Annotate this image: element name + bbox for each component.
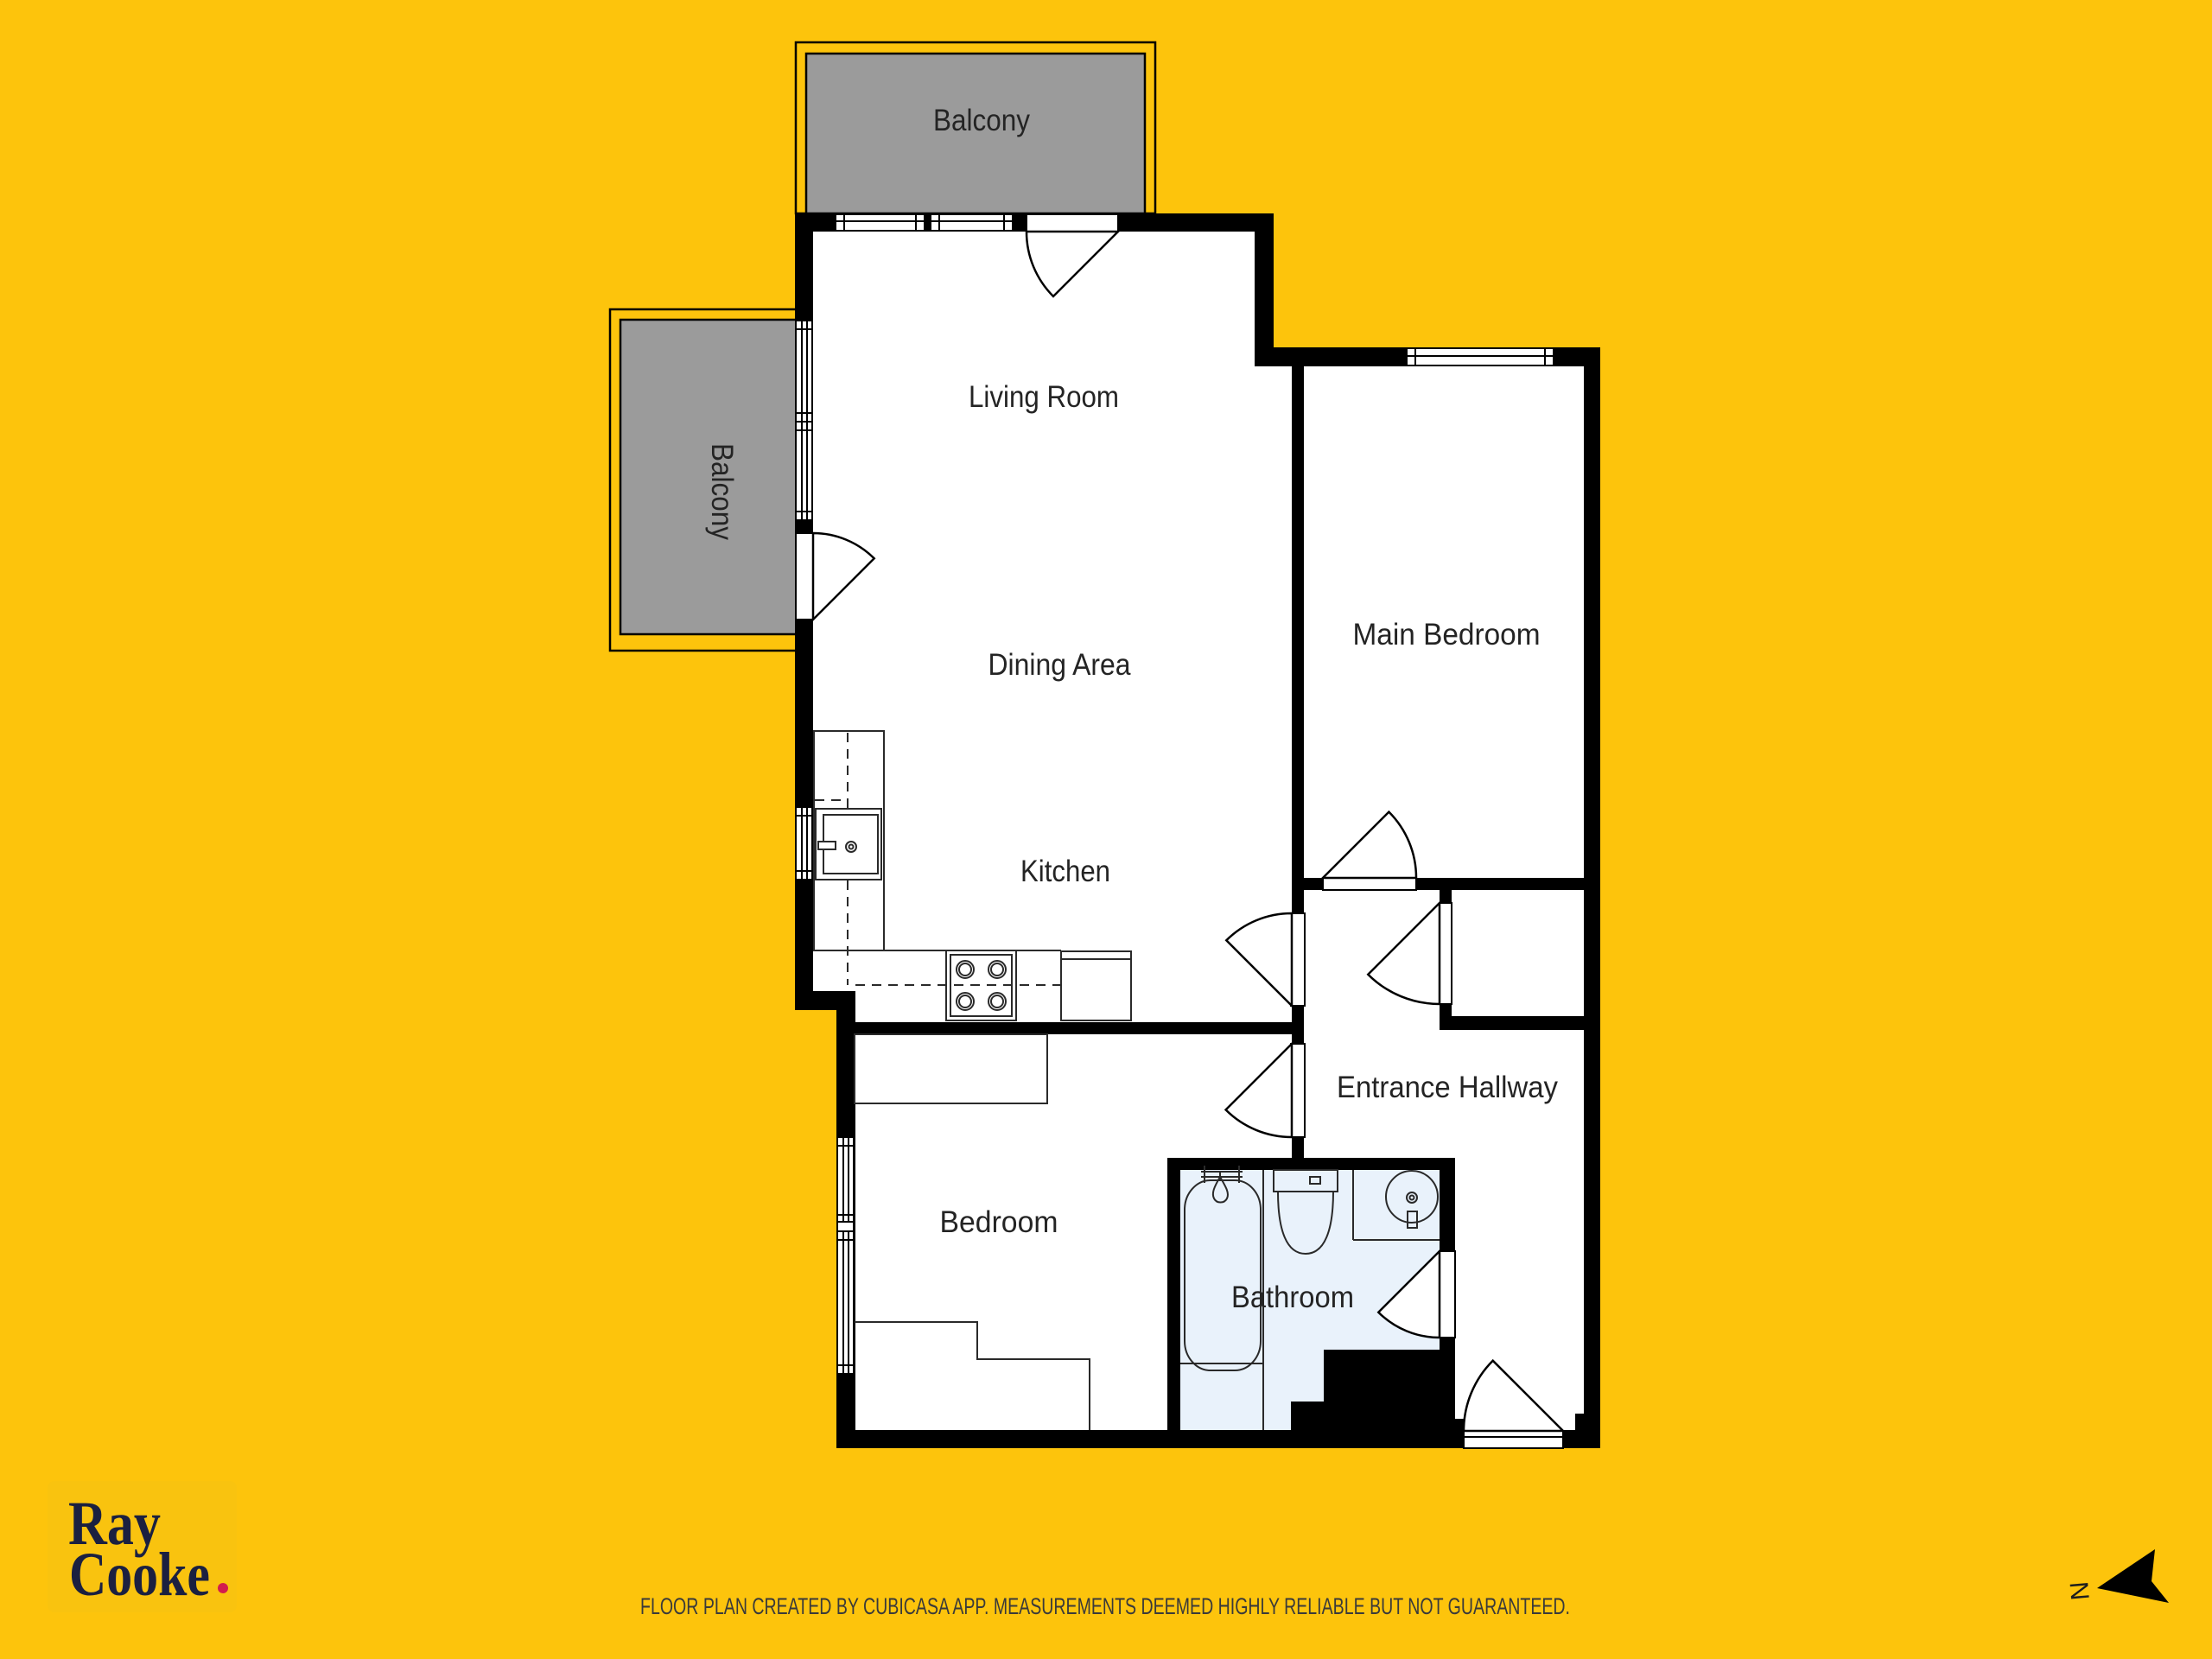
svg-text:FLOOR PLAN CREATED BY CUBICASA: FLOOR PLAN CREATED BY CUBICASA APP. MEAS…: [640, 1593, 1570, 1619]
svg-text:Dining Area: Dining Area: [988, 648, 1131, 682]
svg-text:Cooke: Cooke: [69, 1540, 210, 1609]
svg-text:Bathroom: Bathroom: [1231, 1281, 1354, 1314]
svg-text:Balcony: Balcony: [933, 104, 1030, 137]
svg-text:Bedroom: Bedroom: [940, 1205, 1058, 1239]
svg-text:Kitchen: Kitchen: [1020, 855, 1110, 888]
svg-text:Living Room: Living Room: [969, 380, 1119, 414]
svg-text:N: N: [2065, 1580, 2095, 1601]
svg-text:Main Bedroom: Main Bedroom: [1353, 618, 1541, 652]
svg-text:Entrance Hallway: Entrance Hallway: [1337, 1071, 1558, 1104]
svg-text:Balcony: Balcony: [705, 443, 739, 540]
